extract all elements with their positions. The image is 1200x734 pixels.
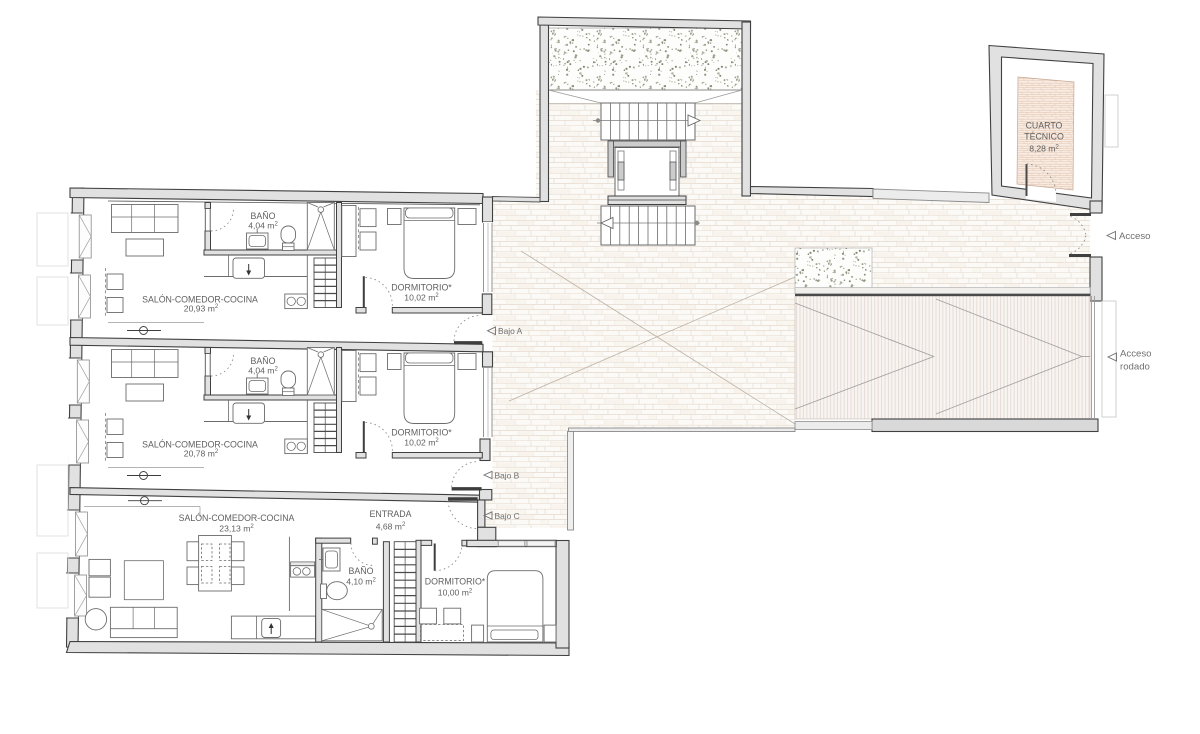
svg-text:DORMITORIO*: DORMITORIO* [425, 577, 486, 587]
svg-text:SALÓN-COMEDOR-COCINA: SALÓN-COMEDOR-COCINA [179, 513, 295, 523]
svg-text:10,02 m2: 10,02 m2 [404, 437, 439, 447]
svg-text:4,68 m2: 4,68 m2 [376, 521, 406, 531]
svg-text:ENTRADA: ENTRADA [369, 509, 411, 519]
svg-text:rodado: rodado [1120, 362, 1150, 373]
svg-text:Bajo B: Bajo B [495, 471, 520, 481]
svg-text:BAÑO: BAÑO [251, 356, 276, 366]
svg-text:23,13 m2: 23,13 m2 [219, 523, 254, 533]
svg-text:TÉCNICO: TÉCNICO [1024, 132, 1064, 142]
svg-text:20,78 m2: 20,78 m2 [184, 448, 219, 458]
svg-text:4,04 m2: 4,04 m2 [248, 366, 278, 376]
svg-text:Acceso: Acceso [1120, 349, 1151, 360]
svg-text:4,04 m2: 4,04 m2 [248, 221, 278, 231]
svg-text:CUARTO: CUARTO [1026, 121, 1063, 131]
svg-text:10,00 m2: 10,00 m2 [438, 588, 473, 598]
svg-text:BAÑO: BAÑO [349, 566, 374, 576]
svg-text:4,10 m2: 4,10 m2 [346, 577, 376, 587]
svg-text:BAÑO: BAÑO [251, 211, 276, 221]
svg-text:10,02 m2: 10,02 m2 [404, 292, 439, 302]
svg-text:8,28 m2: 8,28 m2 [1029, 144, 1059, 154]
svg-text:Bajo C: Bajo C [495, 511, 520, 521]
svg-text:Acceso: Acceso [1119, 231, 1150, 242]
svg-text:20,93 m2: 20,93 m2 [184, 303, 219, 313]
svg-text:DORMITORIO*: DORMITORIO* [391, 428, 452, 438]
svg-text:Bajo A: Bajo A [498, 326, 523, 336]
svg-text:DORMITORIO*: DORMITORIO* [391, 283, 452, 293]
